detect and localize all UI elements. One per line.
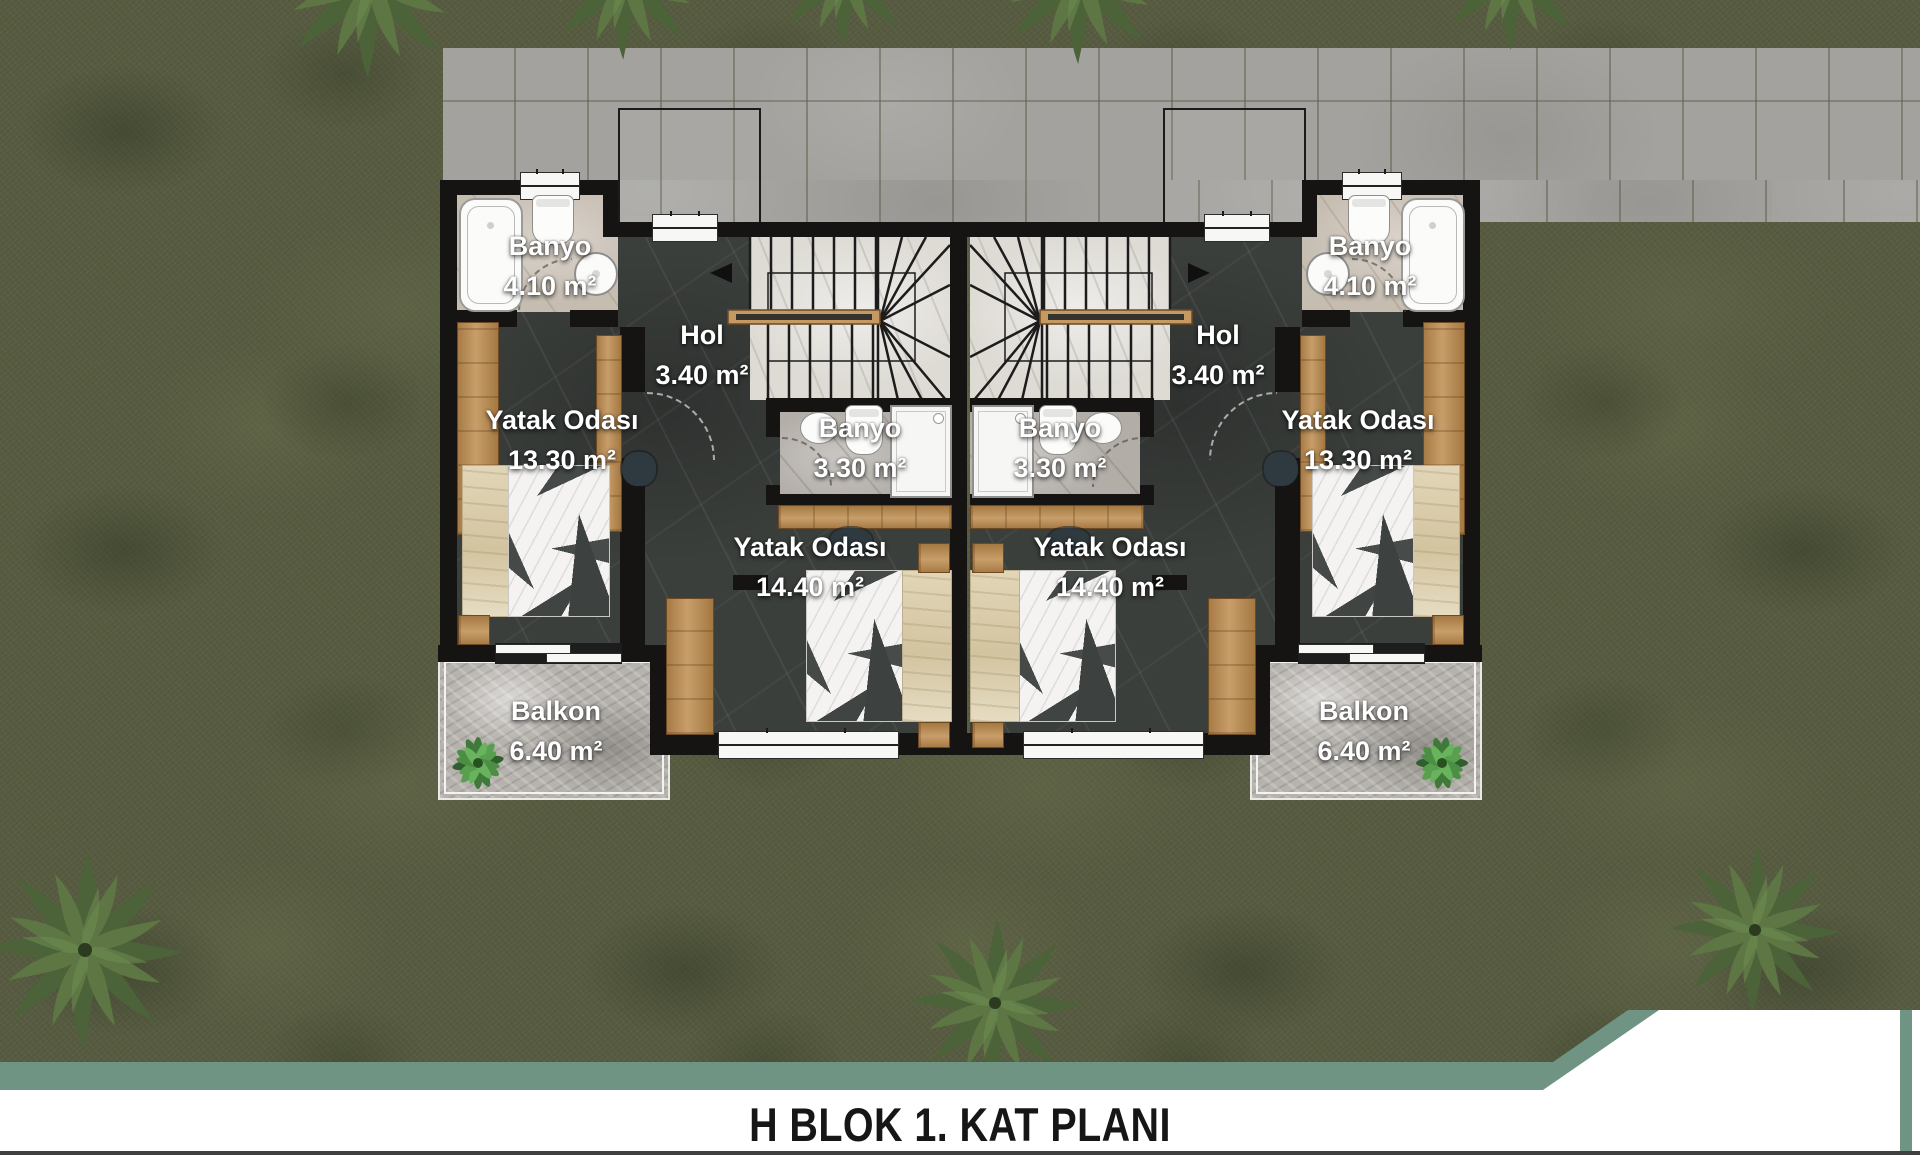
room-area: 4.10 m² [1323, 266, 1416, 306]
room-label-hol-right: Hol 3.40 m² [1171, 315, 1264, 395]
bed [462, 465, 510, 617]
room-label-balkon-right: Balkon 6.40 m² [1317, 691, 1410, 771]
room-label-bedroom-1440-right: Yatak Odası 14.40 m² [1033, 527, 1186, 607]
nightstand [918, 722, 950, 748]
wall [1275, 327, 1300, 392]
room-area: 6.40 m² [1317, 731, 1410, 771]
room-label-bedroom-1440-left: Yatak Odası 14.40 m² [733, 527, 886, 607]
roof-outline-right [1163, 108, 1306, 224]
wardrobe [1208, 598, 1256, 735]
room-label-bedroom-1330-right: Yatak Odası 13.30 m² [1281, 400, 1434, 480]
room-label-balkon-left: Balkon 6.40 m² [509, 691, 602, 771]
wardrobe [778, 505, 952, 529]
bed [902, 570, 952, 722]
wall [1275, 458, 1300, 650]
bed [508, 465, 610, 617]
wall [620, 458, 645, 650]
plan-title: H BLOK 1. KAT PLANI [154, 1097, 1767, 1152]
room-label-banyo-small-left: Banyo 3.30 m² [813, 408, 906, 488]
room-name: Yatak Odası [1281, 400, 1434, 440]
room-area: 3.30 m² [813, 448, 906, 488]
wall [1202, 733, 1270, 755]
window [1204, 214, 1270, 242]
balcony-plant [1412, 732, 1472, 794]
wall [603, 180, 618, 237]
room-name: Hol [655, 315, 748, 355]
room-area: 6.40 m² [509, 731, 602, 771]
room-area: 13.30 m² [1281, 440, 1434, 480]
room-label-banyo-small-right: Banyo 3.30 m² [1013, 408, 1106, 488]
room-area: 3.40 m² [655, 355, 748, 395]
room-name: Banyo [1323, 226, 1416, 266]
room-name: Balkon [1317, 691, 1410, 731]
wall [1463, 180, 1480, 662]
wardrobe [970, 505, 1144, 529]
room-name: Banyo [1013, 408, 1106, 448]
room-name: Banyo [813, 408, 906, 448]
palm-canopy-top [530, 0, 720, 70]
palm-tree [1660, 835, 1850, 1025]
nightstand [972, 543, 1004, 573]
floor-plan-canvas: Banyo 4.10 m² Banyo 4.10 m² Hol 3.40 m² … [0, 0, 1920, 1158]
palm-canopy-top [980, 0, 1180, 75]
wall [1302, 180, 1317, 237]
room-area: 13.30 m² [485, 440, 638, 480]
balcony-plant [448, 732, 508, 794]
room-label-bedroom-1330-left: Yatak Odası 13.30 m² [485, 400, 638, 480]
room-area: 4.10 m² [503, 266, 596, 306]
nightstand [1432, 615, 1464, 645]
room-label-banyo-large-right: Banyo 4.10 m² [1323, 226, 1416, 306]
wall [1425, 645, 1482, 662]
palm-tree [900, 908, 1090, 1098]
room-name: Yatak Odası [1033, 527, 1186, 567]
wall [766, 412, 780, 437]
room-name: Hol [1171, 315, 1264, 355]
room-name: Banyo [503, 226, 596, 266]
room-area: 14.40 m² [733, 567, 886, 607]
party-wall [950, 222, 967, 755]
palm-canopy-top [760, 0, 930, 55]
window [718, 731, 899, 759]
palm-canopy-top [260, 0, 480, 90]
room-area: 3.30 m² [1013, 448, 1106, 488]
bed [1412, 465, 1460, 617]
room-area: 14.40 m² [1033, 567, 1186, 607]
pavement-right-band [1477, 180, 1920, 222]
room-label-hol-left: Hol 3.40 m² [655, 315, 748, 395]
wall [1140, 412, 1154, 437]
room-name: Yatak Odası [485, 400, 638, 440]
palm-canopy-top [1420, 0, 1605, 60]
palm-tree [0, 840, 195, 1060]
room-name: Balkon [509, 691, 602, 731]
wall [620, 327, 645, 392]
roof-outline-left [618, 108, 761, 224]
wall [440, 180, 457, 662]
wall [650, 733, 718, 755]
bed [1312, 465, 1414, 617]
nightstand [458, 615, 490, 645]
window [1023, 731, 1204, 759]
wall [570, 310, 618, 327]
balcony-sliding-door [495, 643, 622, 664]
room-area: 3.40 m² [1171, 355, 1264, 395]
room-label-banyo-large-left: Banyo 4.10 m² [503, 226, 596, 306]
window [652, 214, 718, 242]
nightstand [972, 722, 1004, 748]
wall [438, 645, 495, 662]
room-name: Yatak Odası [733, 527, 886, 567]
balcony-sliding-door [1298, 643, 1425, 664]
wardrobe [666, 598, 714, 735]
wall [1302, 310, 1350, 327]
nightstand [918, 543, 950, 573]
bed [970, 570, 1020, 722]
